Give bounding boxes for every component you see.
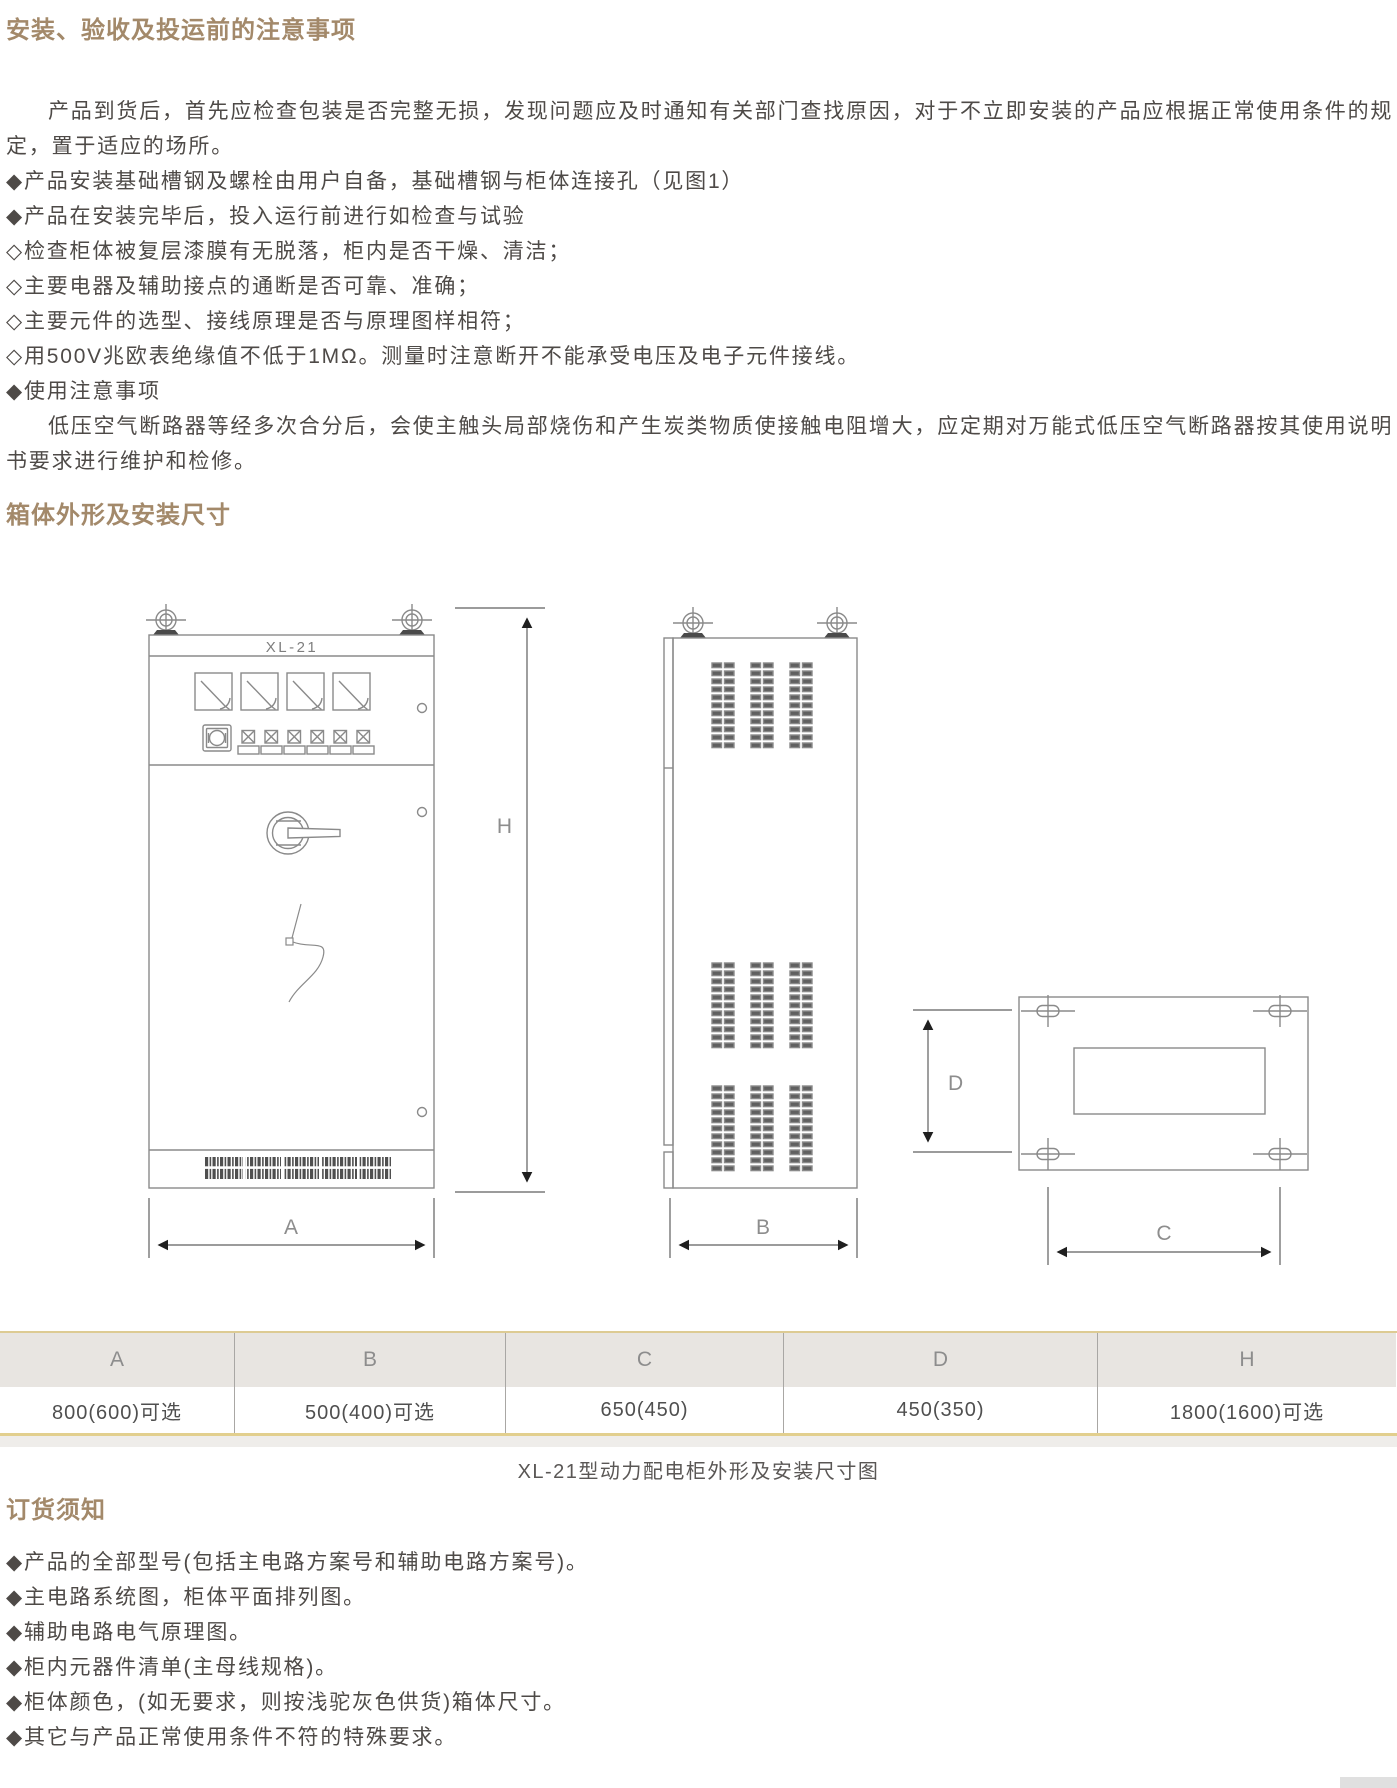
mounting-slot-icon <box>1253 1138 1307 1170</box>
install-note-line: ◆产品安装基础槽钢及螺栓由用户自备，基础槽钢与柜体连接孔（见图1） <box>6 164 1396 199</box>
install-paragraph: 产品到货后，首先应检查包装是否完整无损，发现问题应及时通知有关部门查找原因，对于… <box>6 94 1396 164</box>
dimension-H-label: H <box>497 815 512 838</box>
plan-view <box>1019 995 1308 1170</box>
lock-mark <box>286 904 324 1002</box>
table-column: D 450(350) <box>783 1333 1097 1433</box>
table-value-cell: 1800(1600)可选 <box>1098 1387 1396 1433</box>
door-hinge-icon <box>418 808 427 817</box>
install-notes: 产品到货后，首先应检查包装是否完整无损，发现问题应及时通知有关部门查找原因，对于… <box>6 94 1396 479</box>
install-note-line: ◆使用注意事项 <box>6 374 1396 409</box>
table-header-cell: D <box>784 1333 1097 1387</box>
panel-meter-icon <box>333 673 370 710</box>
install-paragraph: 低压空气断路器等经多次合分后，会使主触头局部烧伤和产生炭类物质使接触电阻增大，应… <box>6 409 1396 479</box>
table-header-cell: C <box>506 1333 783 1387</box>
dimension-A: A <box>149 1198 434 1258</box>
mounting-slot-icon <box>1253 995 1307 1027</box>
order-note-line: ◆柜内元器件清单(主母线规格)。 <box>6 1650 1396 1685</box>
panel-meter-icon <box>241 673 278 710</box>
install-note-line: ◇用500V兆欧表绝缘值不低于1MΩ。测量时注意断开不能承受电压及电子元件接线。 <box>6 339 1396 374</box>
lifting-eyebolt-icon <box>392 604 432 635</box>
table-value-cell: 450(350) <box>784 1387 1097 1433</box>
lifting-eyebolt-icon <box>146 604 186 635</box>
indicator-lamp-icon <box>265 731 278 744</box>
table-header-cell: A <box>0 1333 234 1387</box>
order-note-line: ◆主电路系统图，柜体平面排列图。 <box>6 1580 1396 1615</box>
table-value-cell: 500(400)可选 <box>235 1387 505 1433</box>
rotary-handle-icon <box>267 812 340 854</box>
dimension-B-label: B <box>756 1216 770 1239</box>
indicator-lamp-icon <box>357 731 370 744</box>
figure-caption: XL-21型动力配电柜外形及安装尺寸图 <box>0 1455 1397 1484</box>
indicator-lamp-icon <box>334 731 347 744</box>
order-note-line: ◆柜体颜色，(如无要求，则按浅驼灰色供货)箱体尺寸。 <box>6 1685 1396 1720</box>
indicator-lamp-icon <box>311 731 324 744</box>
door-hinge-icon <box>418 704 427 713</box>
lifting-eyebolt-icon <box>673 607 713 638</box>
cabinet-outline <box>149 635 434 1188</box>
order-note-line: ◆产品的全部型号(包括主电路方案号和辅助电路方案号)。 <box>6 1545 1396 1580</box>
page: { "page": { "accent_color": "#a3896a", "… <box>0 0 1397 1788</box>
table-header-cell: B <box>235 1333 505 1387</box>
table-bottom-shade <box>0 1436 1397 1447</box>
table-column: B 500(400)可选 <box>234 1333 505 1433</box>
order-note-line: ◆其它与产品正常使用条件不符的特殊要求。 <box>6 1720 1396 1755</box>
dimensions-section-heading: 箱体外形及安装尺寸 <box>6 495 231 530</box>
indicator-lamp-icon <box>242 731 255 744</box>
front-view: XL-21 <box>146 604 434 1188</box>
door-edge <box>664 638 673 1145</box>
dimension-H: H <box>455 608 545 1192</box>
dimension-B: B <box>670 1198 857 1258</box>
table-column: A 800(600)可选 <box>0 1333 234 1433</box>
door-hinge-icon <box>418 1108 427 1117</box>
dimension-D-label: D <box>948 1072 963 1095</box>
install-section-heading: 安装、验收及投运前的注意事项 <box>6 10 356 45</box>
page-corner-artifact <box>1340 1777 1397 1788</box>
dimension-C: C <box>1048 1187 1280 1265</box>
table-header-cell: H <box>1098 1333 1396 1387</box>
mounting-slot-icon <box>1021 995 1075 1027</box>
install-note-line: ◇主要元件的选型、接线原理是否与原理图样相符； <box>6 304 1396 339</box>
panel-meter-icon <box>287 673 324 710</box>
cabinet-dimension-diagram: XL-21 <box>0 540 1397 1300</box>
install-note-line: ◇主要电器及辅助接点的通断是否可靠、准确； <box>6 269 1396 304</box>
indicator-lamp-icon <box>288 731 301 744</box>
vent-grille <box>712 663 812 1171</box>
control-switch-icon <box>203 725 231 751</box>
cable-entry-opening <box>1074 1048 1265 1114</box>
table-value-cell: 650(450) <box>506 1387 783 1433</box>
order-note-line: ◆辅助电路电气原理图。 <box>6 1615 1396 1650</box>
table-column: C 650(450) <box>505 1333 783 1433</box>
dimension-A-label: A <box>284 1216 298 1239</box>
lifting-eyebolt-icon <box>817 607 857 638</box>
mounting-slot-icon <box>1021 1138 1075 1170</box>
cabinet-model-label: XL-21 <box>266 639 319 656</box>
panel-meter-icon <box>195 673 232 710</box>
install-note-line: ◆产品在安装完毕后，投入运行前进行如检查与试验 <box>6 199 1396 234</box>
dimension-table: A 800(600)可选 B 500(400)可选 C 650(450) D 4… <box>0 1331 1397 1436</box>
side-view <box>664 607 857 1188</box>
dimension-D: D <box>913 1010 1012 1152</box>
order-notes: ◆产品的全部型号(包括主电路方案号和辅助电路方案号)。 ◆主电路系统图，柜体平面… <box>6 1545 1396 1755</box>
order-section-heading: 订货须知 <box>6 1490 106 1525</box>
table-value-cell: 800(600)可选 <box>0 1387 234 1433</box>
vent-strip <box>205 1157 391 1179</box>
table-column: H 1800(1600)可选 <box>1097 1333 1396 1433</box>
dimension-C-label: C <box>1156 1222 1171 1245</box>
install-note-line: ◇检查柜体被复层漆膜有无脱落，柜内是否干燥、清洁； <box>6 234 1396 269</box>
